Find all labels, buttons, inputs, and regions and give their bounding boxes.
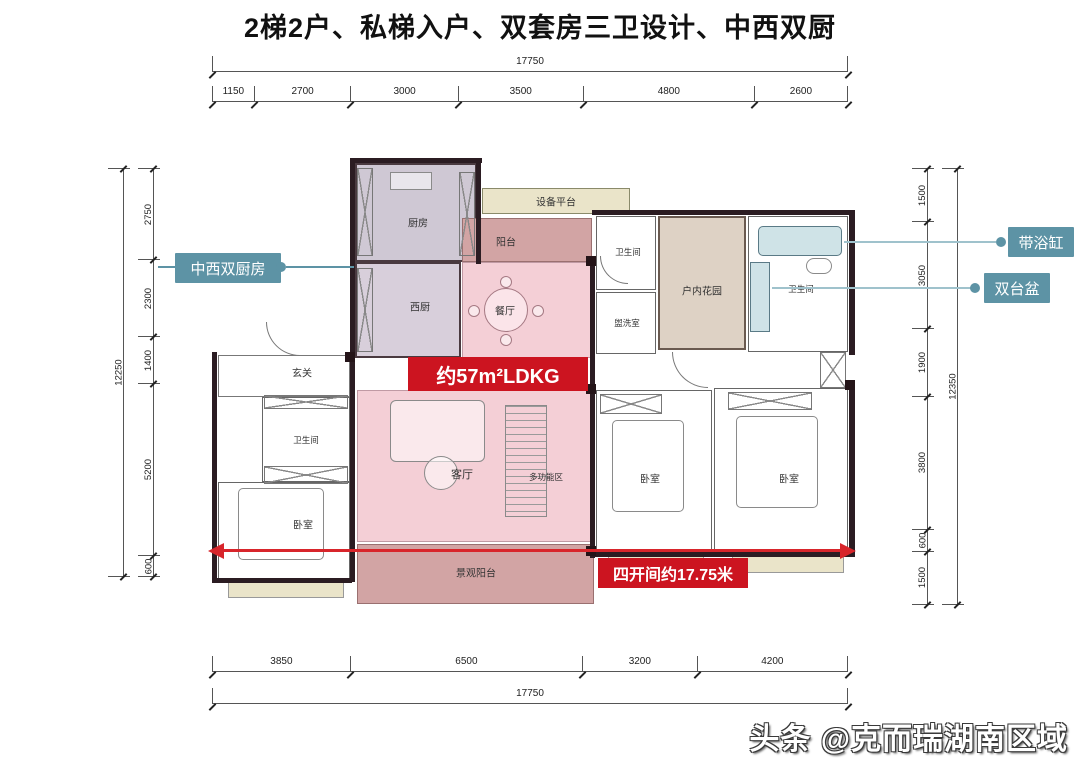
door-arc xyxy=(672,352,708,388)
dim-segment: 2300 xyxy=(138,259,160,336)
room-label-west-kitchen: 西厨 xyxy=(410,299,430,314)
dim-segment: 17750 xyxy=(212,688,848,704)
dim-value: 12350 xyxy=(948,373,959,399)
dim-segment: 1400 xyxy=(138,336,160,383)
room-label-foyer: 玄关 xyxy=(292,365,312,380)
room-label-multi-zone: 多功能区 xyxy=(529,471,563,483)
dining-chair xyxy=(500,334,512,346)
closet-xbox xyxy=(357,168,373,256)
dim-right-total: 12350 xyxy=(942,168,964,605)
dim-value: 1150 xyxy=(223,86,245,97)
callout-dot xyxy=(996,237,1006,247)
room-label-bedroom-left: 卧室 xyxy=(293,517,313,532)
dim-segment: 12250 xyxy=(108,168,130,577)
dim-value: 5200 xyxy=(143,459,154,480)
callout-dot xyxy=(970,283,980,293)
bed xyxy=(736,416,818,508)
dining-chair xyxy=(500,276,512,288)
wall-segment xyxy=(212,578,352,583)
wall-segment xyxy=(592,210,855,215)
dim-segment: 3800 xyxy=(912,396,934,529)
closet-xbox xyxy=(820,352,846,388)
dim-segment: 1900 xyxy=(912,328,934,395)
dim-tick xyxy=(845,671,853,679)
wall-segment xyxy=(350,158,355,358)
room-label-dining: 餐厅 xyxy=(495,303,515,318)
dim-segment: 6500 xyxy=(350,656,582,672)
wall-segment xyxy=(590,260,595,558)
living-bed xyxy=(390,400,485,462)
wall-segment xyxy=(594,552,855,557)
wall-segment xyxy=(849,210,855,355)
dim-tick xyxy=(845,101,853,109)
dim-tick xyxy=(845,703,853,711)
dim-segment: 4200 xyxy=(697,656,848,672)
column-block xyxy=(586,256,596,266)
dim-segment: 5200 xyxy=(138,383,160,555)
span-arrow-right-head xyxy=(840,543,856,559)
dim-bottom-total: 17750 xyxy=(212,688,848,704)
dim-left-total: 12250 xyxy=(108,168,130,577)
dim-value: 3050 xyxy=(917,265,928,286)
column-block xyxy=(845,380,855,390)
dim-value: 600 xyxy=(143,558,154,574)
room-label-balcony-north: 阳台 xyxy=(496,234,516,249)
dim-segment: 4800 xyxy=(583,86,754,102)
room-label-bedroom-mid: 卧室 xyxy=(640,471,660,486)
callout-dot xyxy=(276,262,286,272)
closet-xbox xyxy=(600,394,662,414)
dim-value: 1400 xyxy=(143,350,154,371)
floorplan-page: 2梯2户、私梯入户、双套房三卫设计、中西双厨 17750 1150 2700 3… xyxy=(0,0,1080,766)
room-label-view-balcony: 景观阳台 xyxy=(456,565,496,580)
callout-line xyxy=(158,266,175,268)
closet-xbox xyxy=(264,466,348,484)
dim-segment: 3000 xyxy=(350,86,457,102)
kitchen-sink xyxy=(390,172,432,190)
dim-segment: 3500 xyxy=(458,86,583,102)
dim-value: 2300 xyxy=(143,288,154,309)
room-label-indoor-garden: 户内花园 xyxy=(682,283,722,298)
dim-segment: 1150 xyxy=(212,86,254,102)
dining-chair xyxy=(532,305,544,317)
dim-segment: 3050 xyxy=(912,221,934,328)
dim-segment: 2600 xyxy=(754,86,848,102)
dim-top-total: 17750 xyxy=(212,56,848,72)
stairs xyxy=(505,405,547,517)
callout-line xyxy=(286,266,354,268)
dim-value: 1500 xyxy=(917,185,928,206)
callout-line xyxy=(772,287,972,289)
dim-value: 1500 xyxy=(917,567,928,588)
dim-value: 600 xyxy=(917,532,928,548)
closet-xbox xyxy=(728,392,812,410)
page-title: 2梯2户、私梯入户、双套房三卫设计、中西双厨 xyxy=(0,6,1080,45)
room-label-bath-right: 卫生间 xyxy=(788,283,814,295)
dim-tick xyxy=(845,71,853,79)
dim-value: 3800 xyxy=(917,452,928,473)
room-balcony-north xyxy=(462,218,592,262)
dim-right-segments: 1500 3050 1900 3800 600 1500 xyxy=(912,168,934,605)
wall-segment xyxy=(849,386,855,556)
room-label-bath-left: 卫生间 xyxy=(293,434,319,446)
column-block xyxy=(345,352,355,362)
closet-xbox xyxy=(357,268,373,352)
dim-value: 4800 xyxy=(658,86,680,97)
door-arc xyxy=(266,322,300,356)
dim-value: 17750 xyxy=(516,688,544,699)
dim-bottom-segments: 3850 6500 3200 4200 xyxy=(212,656,848,672)
span-badge: 四开间约17.75米 xyxy=(598,558,748,588)
dim-value: 2750 xyxy=(143,204,154,225)
span-arrow-line xyxy=(218,549,846,552)
room-label-laundry: 盥洗室 xyxy=(614,317,640,329)
wall-segment xyxy=(350,158,482,163)
dim-segment: 3850 xyxy=(212,656,350,672)
callout-bathtub: 带浴缸 xyxy=(1008,227,1074,257)
bay-window xyxy=(732,555,844,573)
watermark: 头条 @克而瑞湖南区域 xyxy=(749,714,1068,758)
span-arrow-left-head xyxy=(208,543,224,559)
double-basin xyxy=(750,262,770,332)
dim-segment: 17750 xyxy=(212,56,848,72)
room-foyer xyxy=(218,355,350,397)
room-label-kitchen: 厨房 xyxy=(408,215,428,230)
callout-double-basin: 双台盆 xyxy=(984,273,1050,303)
dim-value: 1900 xyxy=(917,352,928,373)
dim-value: 2700 xyxy=(291,86,313,97)
room-label-bath-mid: 卫生间 xyxy=(615,246,641,258)
callout-line xyxy=(844,241,996,243)
dim-value: 3200 xyxy=(629,656,651,667)
ldkg-area-badge: 约57m²LDKG xyxy=(408,357,588,391)
dim-segment: 2750 xyxy=(138,168,160,259)
wall-segment xyxy=(476,158,481,264)
room-label-equipment-platform: 设备平台 xyxy=(536,194,576,209)
dim-segment: 2700 xyxy=(254,86,351,102)
dim-value: 3500 xyxy=(510,86,532,97)
room-label-living: 客厅 xyxy=(451,466,473,482)
dim-segment: 600 xyxy=(912,529,934,551)
dim-value: 3850 xyxy=(270,656,292,667)
dim-left-segments: 2750 2300 1400 5200 600 xyxy=(138,168,160,577)
closet-xbox xyxy=(459,172,475,256)
dining-chair xyxy=(468,305,480,317)
toilet xyxy=(806,258,832,274)
room-label-bedroom-right: 卧室 xyxy=(779,471,799,486)
dim-value: 17750 xyxy=(516,56,544,67)
dim-segment: 1500 xyxy=(912,168,934,221)
dim-value: 3000 xyxy=(393,86,415,97)
callout-dual-kitchen: 中西双厨房 xyxy=(175,253,281,283)
bed xyxy=(612,420,684,512)
dim-value: 12250 xyxy=(114,359,125,385)
dim-top-segments: 1150 2700 3000 3500 4800 2600 xyxy=(212,86,848,102)
closet-xbox xyxy=(264,395,348,409)
bathtub xyxy=(758,226,842,256)
dim-value: 2600 xyxy=(790,86,812,97)
dim-value: 4200 xyxy=(761,656,783,667)
dim-value: 6500 xyxy=(455,656,477,667)
dim-segment: 12350 xyxy=(942,168,964,605)
dim-segment: 1500 xyxy=(912,551,934,605)
dim-segment: 3200 xyxy=(582,656,697,672)
